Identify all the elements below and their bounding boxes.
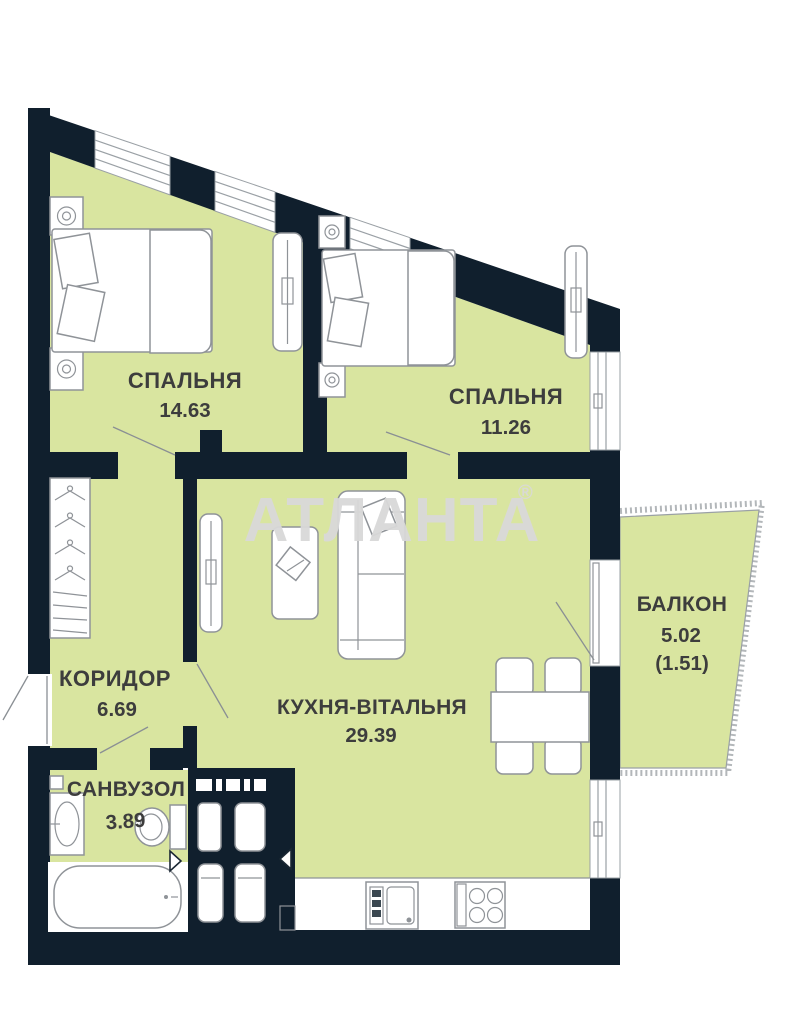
wall-corridor-lower bbox=[183, 726, 197, 768]
kitchen-area: 29.39 bbox=[345, 724, 396, 747]
bedroom1-nightstand-bottom bbox=[50, 348, 83, 390]
bedroom1-wardrobe bbox=[273, 233, 302, 351]
bedroom1-door-gap bbox=[118, 452, 175, 479]
bedroom2-nightstand-top bbox=[319, 216, 345, 248]
bathroom-sink bbox=[50, 793, 84, 855]
bedroom2-door-gap bbox=[407, 452, 458, 479]
corridor-wardrobe bbox=[50, 478, 90, 638]
watermark: АТЛАНТА ® bbox=[244, 482, 541, 555]
wall-corridor-upper bbox=[183, 479, 197, 662]
kitchen-label: КУХНЯ-ВІТАЛЬНЯ bbox=[277, 696, 467, 719]
wall-bathroom-left bbox=[48, 748, 97, 770]
balcony-area-coefficient: (1.51) bbox=[655, 652, 709, 675]
window-kitchen-right bbox=[590, 780, 620, 878]
corridor-kitchen-door-gap bbox=[183, 662, 197, 726]
floor-plan-svg: СПАЛЬНЯ 14.63 СПАЛЬНЯ 11.26 КОРИДОР 6.69… bbox=[0, 0, 800, 1012]
kitchen-radiator bbox=[200, 514, 222, 632]
floor-plan-page: СПАЛЬНЯ 14.63 СПАЛЬНЯ 11.26 КОРИДОР 6.69… bbox=[0, 0, 800, 1012]
balcony-area: 5.02 bbox=[661, 624, 701, 647]
bathroom-door-gap bbox=[97, 748, 150, 772]
bedroom1-bed bbox=[52, 229, 212, 353]
bedroom1-area: 14.63 bbox=[159, 399, 210, 422]
registered-trademark-icon: ® bbox=[518, 482, 533, 504]
wall-stub bbox=[200, 430, 222, 454]
bathtub bbox=[48, 862, 188, 932]
wall-bathroom-right bbox=[150, 748, 183, 770]
kitchen-sink-unit bbox=[366, 882, 418, 929]
kitchen-counter bbox=[280, 878, 590, 930]
wall-left bbox=[28, 108, 50, 965]
bedroom2-radiator bbox=[565, 246, 587, 358]
wall-bottom bbox=[28, 930, 620, 965]
window-bedroom2-right bbox=[590, 352, 620, 450]
bathroom-shelf bbox=[50, 776, 63, 789]
corridor-label: КОРИДОР bbox=[59, 666, 171, 691]
bedroom1-label: СПАЛЬНЯ bbox=[128, 368, 242, 393]
bathroom-label: САНВУЗОЛ bbox=[67, 778, 185, 801]
bedroom2-nightstand-bottom bbox=[319, 363, 345, 397]
stove bbox=[455, 882, 505, 928]
watermark-text: АТЛАНТА bbox=[244, 486, 541, 555]
entrance-door bbox=[3, 674, 52, 746]
bedroom2-label: СПАЛЬНЯ bbox=[449, 384, 563, 409]
balcony-label: БАЛКОН bbox=[637, 593, 728, 616]
bedroom2-bed bbox=[322, 250, 455, 366]
bathroom-area: 3.89 bbox=[105, 809, 146, 835]
bedroom2-area: 11.26 bbox=[481, 416, 531, 439]
corridor-area: 6.69 bbox=[97, 698, 137, 721]
